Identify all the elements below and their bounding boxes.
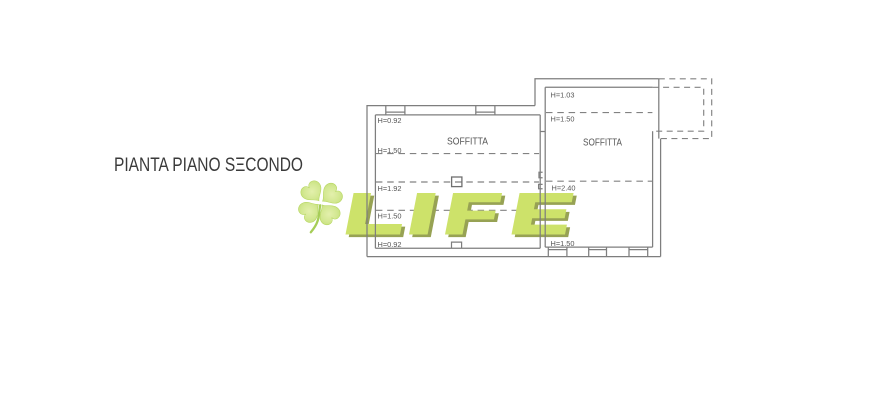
svg-text:SOFFITTA: SOFFITTA	[447, 137, 488, 148]
svg-text:H=1.92: H=1.92	[378, 184, 402, 193]
svg-text:H=1.03: H=1.03	[551, 91, 575, 100]
svg-text:PIANTA PIANO SΞCONDO: PIANTA PIANO SΞCONDO	[114, 155, 303, 176]
svg-text:H=1.50: H=1.50	[551, 239, 575, 248]
svg-text:H=1.50: H=1.50	[551, 115, 575, 124]
svg-text:SOFFITTA: SOFFITTA	[583, 137, 622, 148]
svg-text:H=0.92: H=0.92	[378, 240, 402, 249]
svg-text:H=0.92: H=0.92	[378, 116, 402, 125]
svg-text:H=1.50: H=1.50	[378, 211, 402, 220]
svg-text:H=2.40: H=2.40	[552, 184, 576, 193]
svg-text:H=1.50: H=1.50	[378, 146, 402, 155]
